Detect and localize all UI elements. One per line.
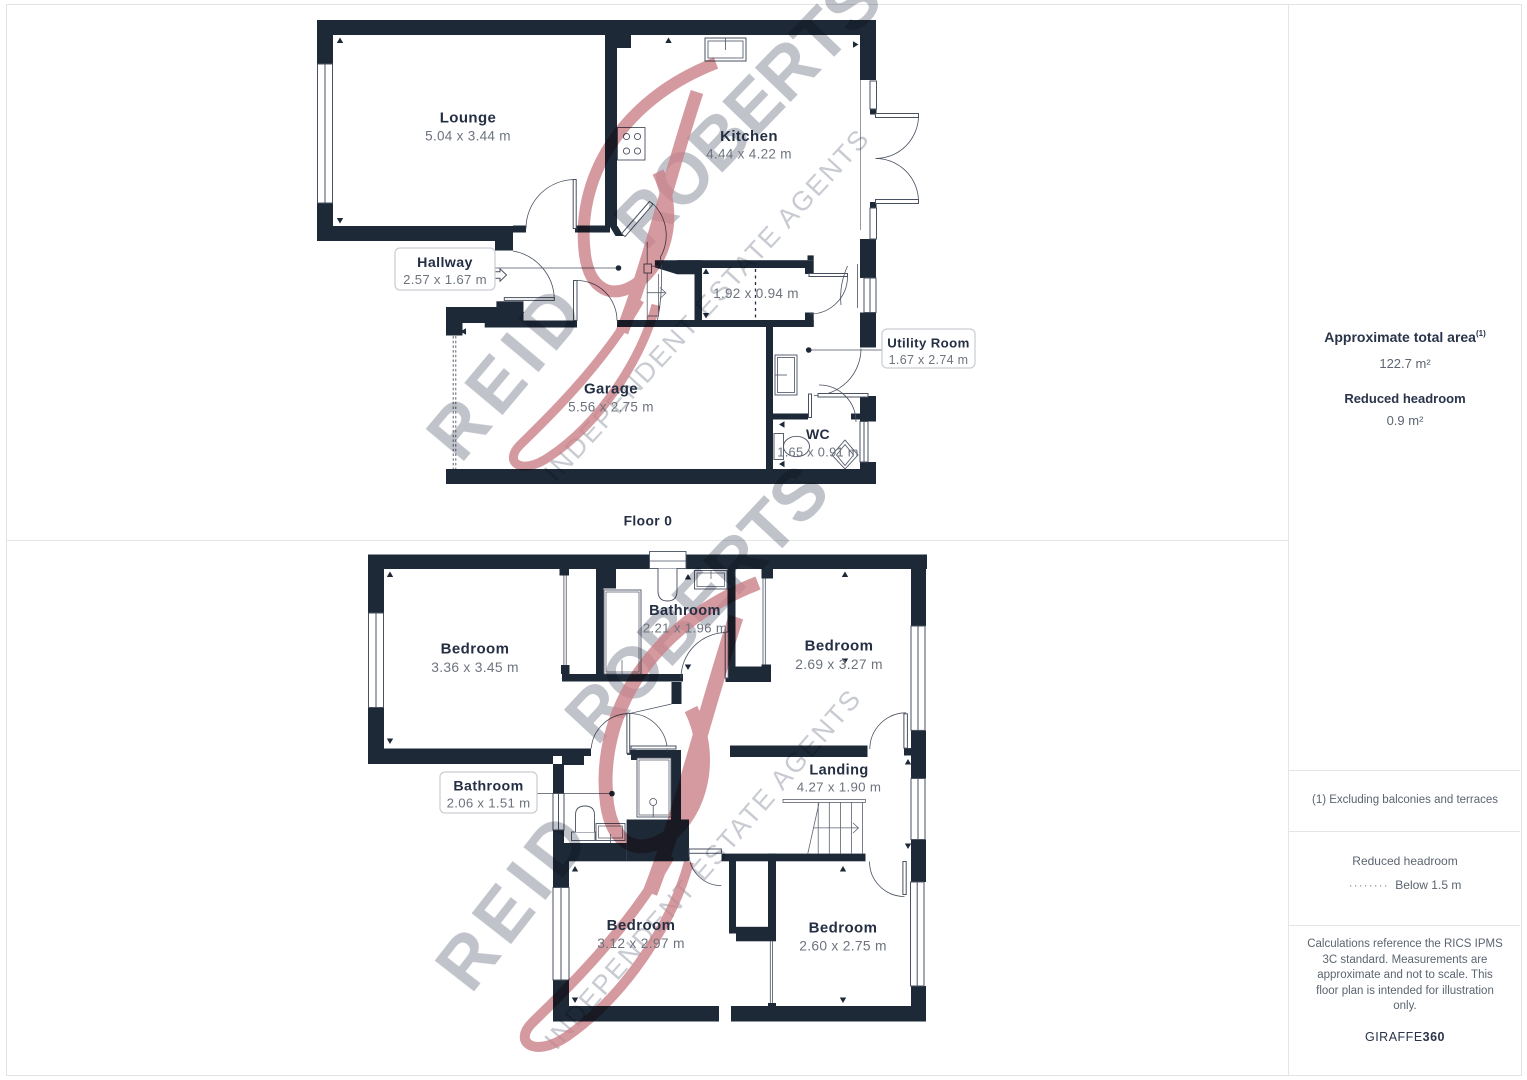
svg-text:2.57 x 1.67 m: 2.57 x 1.67 m: [403, 272, 487, 287]
svg-text:2.60 x 2.75 m: 2.60 x 2.75 m: [799, 939, 887, 954]
svg-text:Kitchen: Kitchen: [720, 128, 778, 145]
svg-text:Garage: Garage: [584, 381, 638, 398]
svg-text:Lounge: Lounge: [440, 110, 497, 127]
svg-text:WC: WC: [806, 426, 830, 442]
svg-text:1.92 x 0.94 m: 1.92 x 0.94 m: [713, 286, 799, 301]
svg-text:2.06 x 1.51 m: 2.06 x 1.51 m: [447, 796, 531, 811]
svg-text:4.27 x 1.90 m: 4.27 x 1.90 m: [797, 780, 881, 795]
svg-text:3.12 x 2.97 m: 3.12 x 2.97 m: [597, 936, 685, 951]
svg-text:Bedroom: Bedroom: [809, 920, 878, 937]
svg-text:3.36 x 3.45 m: 3.36 x 3.45 m: [431, 660, 519, 675]
svg-text:Bedroom: Bedroom: [441, 641, 510, 658]
svg-text:Bedroom: Bedroom: [607, 917, 676, 934]
svg-text:Landing: Landing: [809, 763, 868, 779]
svg-text:2.69 x 3.27 m: 2.69 x 3.27 m: [795, 657, 883, 672]
svg-text:2.21 x 1.96 m: 2.21 x 1.96 m: [643, 621, 727, 636]
svg-text:5.56 x 2.75 m: 5.56 x 2.75 m: [568, 400, 654, 415]
svg-text:Floor 0: Floor 0: [624, 514, 673, 529]
svg-text:Bedroom: Bedroom: [805, 638, 874, 655]
svg-text:1.67 x 2.74 m: 1.67 x 2.74 m: [889, 353, 969, 367]
svg-text:Bathroom: Bathroom: [453, 779, 523, 795]
svg-text:1.65 x 0.91 m: 1.65 x 0.91 m: [777, 445, 858, 460]
svg-text:Bathroom: Bathroom: [649, 603, 721, 619]
svg-text:4.44 x 4.22 m: 4.44 x 4.22 m: [706, 147, 792, 162]
svg-text:5.04 x 3.44 m: 5.04 x 3.44 m: [425, 129, 511, 144]
svg-text:Utility Room: Utility Room: [887, 336, 969, 351]
svg-text:Hallway: Hallway: [417, 255, 473, 271]
